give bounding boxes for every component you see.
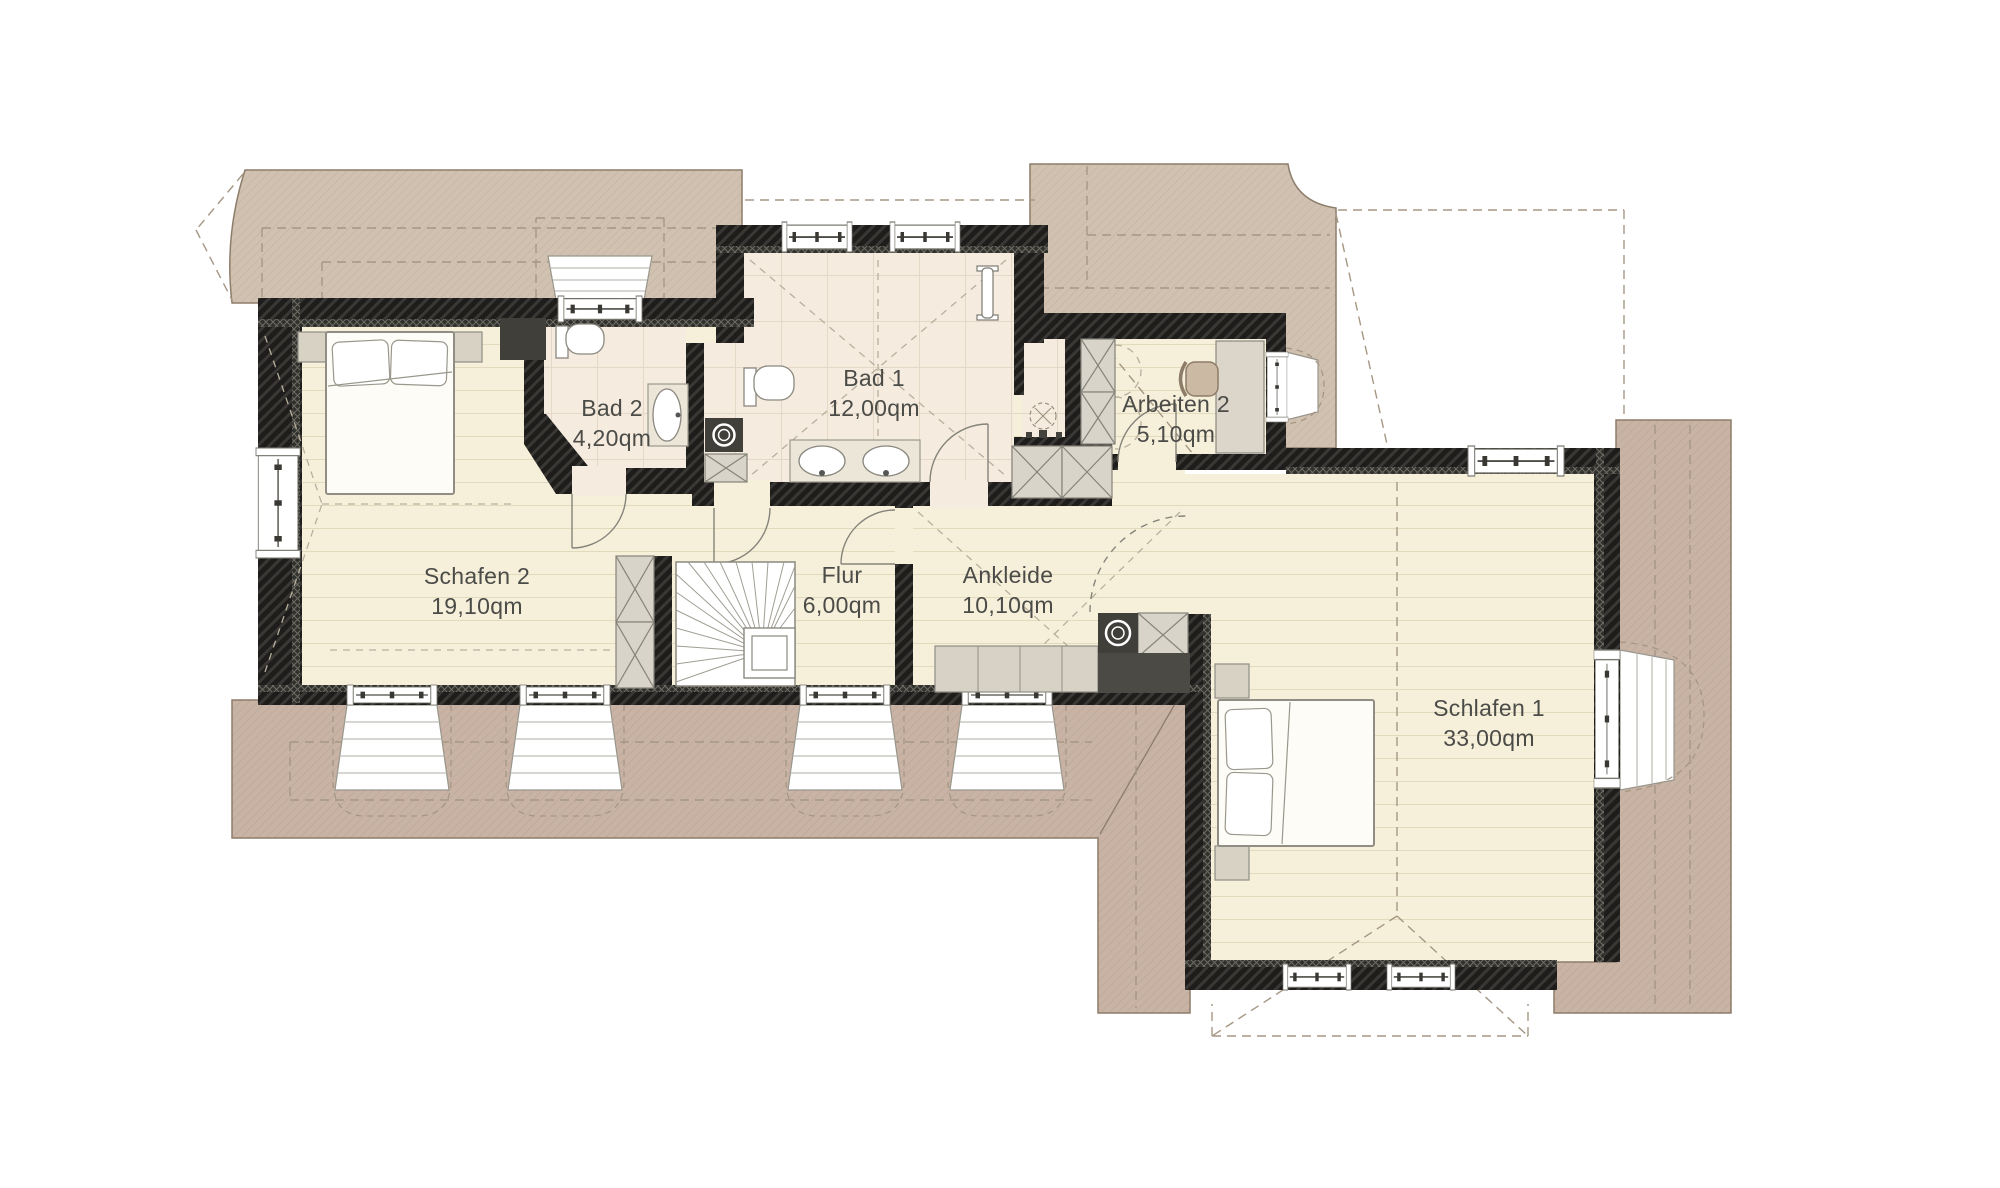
sink-bad2 xyxy=(648,384,688,446)
washer-bad2 xyxy=(705,418,743,452)
room-label-flur: Flur 6,00qm xyxy=(803,561,882,621)
room-label-ankleide: Ankleide 10,10qm xyxy=(962,561,1054,621)
room-area: 4,20qm xyxy=(573,424,652,454)
room-name: Arbeiten 2 xyxy=(1122,390,1230,420)
room-label-schlafen-2: Schafen 2 19,10qm xyxy=(424,562,530,622)
room-name: Schlafen 1 xyxy=(1433,694,1545,724)
room-area: 33,00qm xyxy=(1433,724,1545,754)
washer-ankleide xyxy=(1098,613,1138,653)
staircase xyxy=(676,562,795,686)
toilet-bad2 xyxy=(556,324,604,358)
floor-plan: Schafen 2 19,10qm Bad 2 4,20qm Bad 1 12,… xyxy=(0,0,2000,1188)
room-label-arbeiten-2: Arbeiten 2 5,10qm xyxy=(1122,390,1230,450)
room-label-bad-2: Bad 2 4,20qm xyxy=(573,394,652,454)
bed-schlafen2 xyxy=(298,332,482,494)
room-name: Bad 2 xyxy=(573,394,652,424)
room-name: Schafen 2 xyxy=(424,562,530,592)
room-label-bad-1: Bad 1 12,00qm xyxy=(828,364,920,424)
room-area: 12,00qm xyxy=(828,394,920,424)
double-sink-bad1 xyxy=(790,440,920,482)
room-name: Ankleide xyxy=(962,561,1054,591)
room-name: Flur xyxy=(803,561,882,591)
room-name: Bad 1 xyxy=(828,364,920,394)
room-area: 10,10qm xyxy=(962,591,1054,621)
room-area: 5,10qm xyxy=(1122,420,1230,450)
wardrobe-ankleide xyxy=(935,646,1190,693)
room-area: 6,00qm xyxy=(803,591,882,621)
duct-box xyxy=(500,318,546,360)
room-area: 19,10qm xyxy=(424,592,530,622)
room-label-schlafen-1: Schlafen 1 33,00qm xyxy=(1433,694,1545,754)
